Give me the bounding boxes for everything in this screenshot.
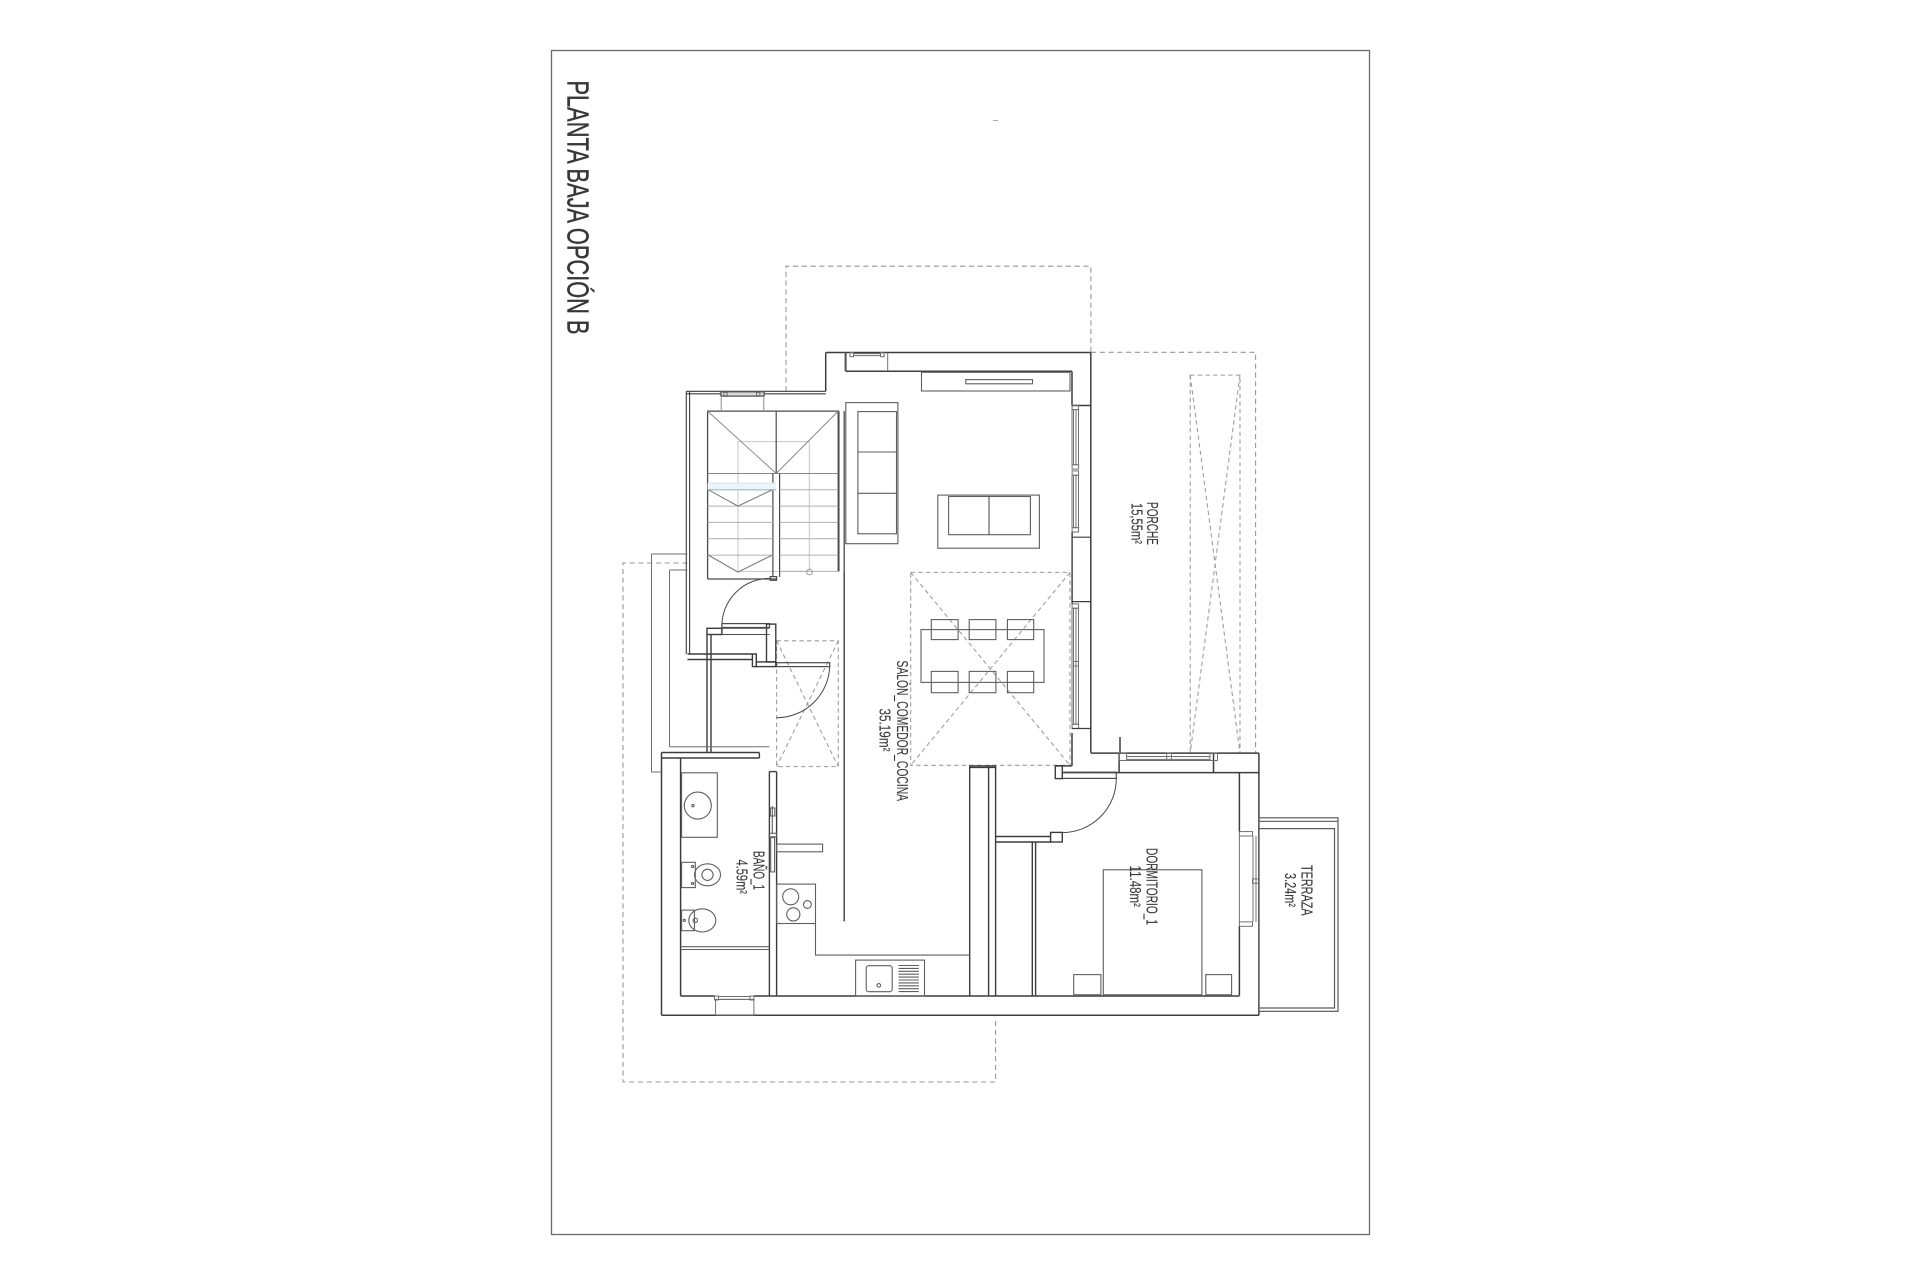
svg-text:BAÑO_1 4.59m²: BAÑO_1 4.59m² <box>733 851 767 894</box>
svg-text:TERRAZA 3.24m²: TERRAZA 3.24m² <box>1281 865 1315 919</box>
svg-text:PLANTA BAJA OPCIÓN B: PLANTA BAJA OPCIÓN B <box>561 81 596 335</box>
svg-text:SALÓN_COMEDOR_COCINA 35.19m²: SALÓN_COMEDOR_COCINA 35.19m² <box>876 661 911 805</box>
svg-text:PORCHE 15,55m²: PORCHE 15,55m² <box>1128 502 1161 549</box>
svg-text:DORMITORIO_1 11.48m²: DORMITORIO_1 11.48m² <box>1126 848 1160 929</box>
